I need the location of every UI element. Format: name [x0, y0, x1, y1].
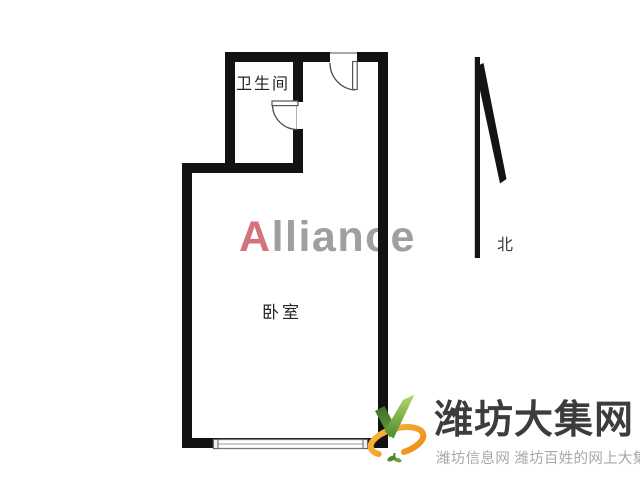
- wall-left: [182, 163, 192, 448]
- wall-bedroom-top: [182, 163, 303, 173]
- floorplan-image: Alliance 卫: [0, 0, 640, 480]
- wall-bottom: [182, 438, 388, 448]
- north-label: 北: [497, 231, 513, 255]
- bathroom-door-opening: [291, 102, 305, 129]
- logo-subtitle: 潍坊信息网 潍坊百姓的网上大集: [436, 451, 640, 468]
- logo-title: 潍坊大集网: [434, 401, 634, 440]
- bathroom-label: 卫生间: [236, 70, 290, 94]
- alliance-watermark: Alliance: [239, 216, 416, 259]
- wall-bathroom-left: [225, 52, 235, 173]
- entry-door-icon: [330, 62, 357, 91]
- wall-top: [225, 52, 388, 62]
- watermark-rest: lliance: [272, 213, 416, 261]
- watermark-letter-a: A: [239, 213, 272, 261]
- bedroom-label: 卧室: [262, 298, 302, 323]
- north-arrow-icon: [475, 57, 507, 258]
- bathroom-opening-edge: [296, 104, 297, 129]
- logo-sprout: [386, 453, 402, 463]
- entry-opening-edge: [330, 52, 357, 54]
